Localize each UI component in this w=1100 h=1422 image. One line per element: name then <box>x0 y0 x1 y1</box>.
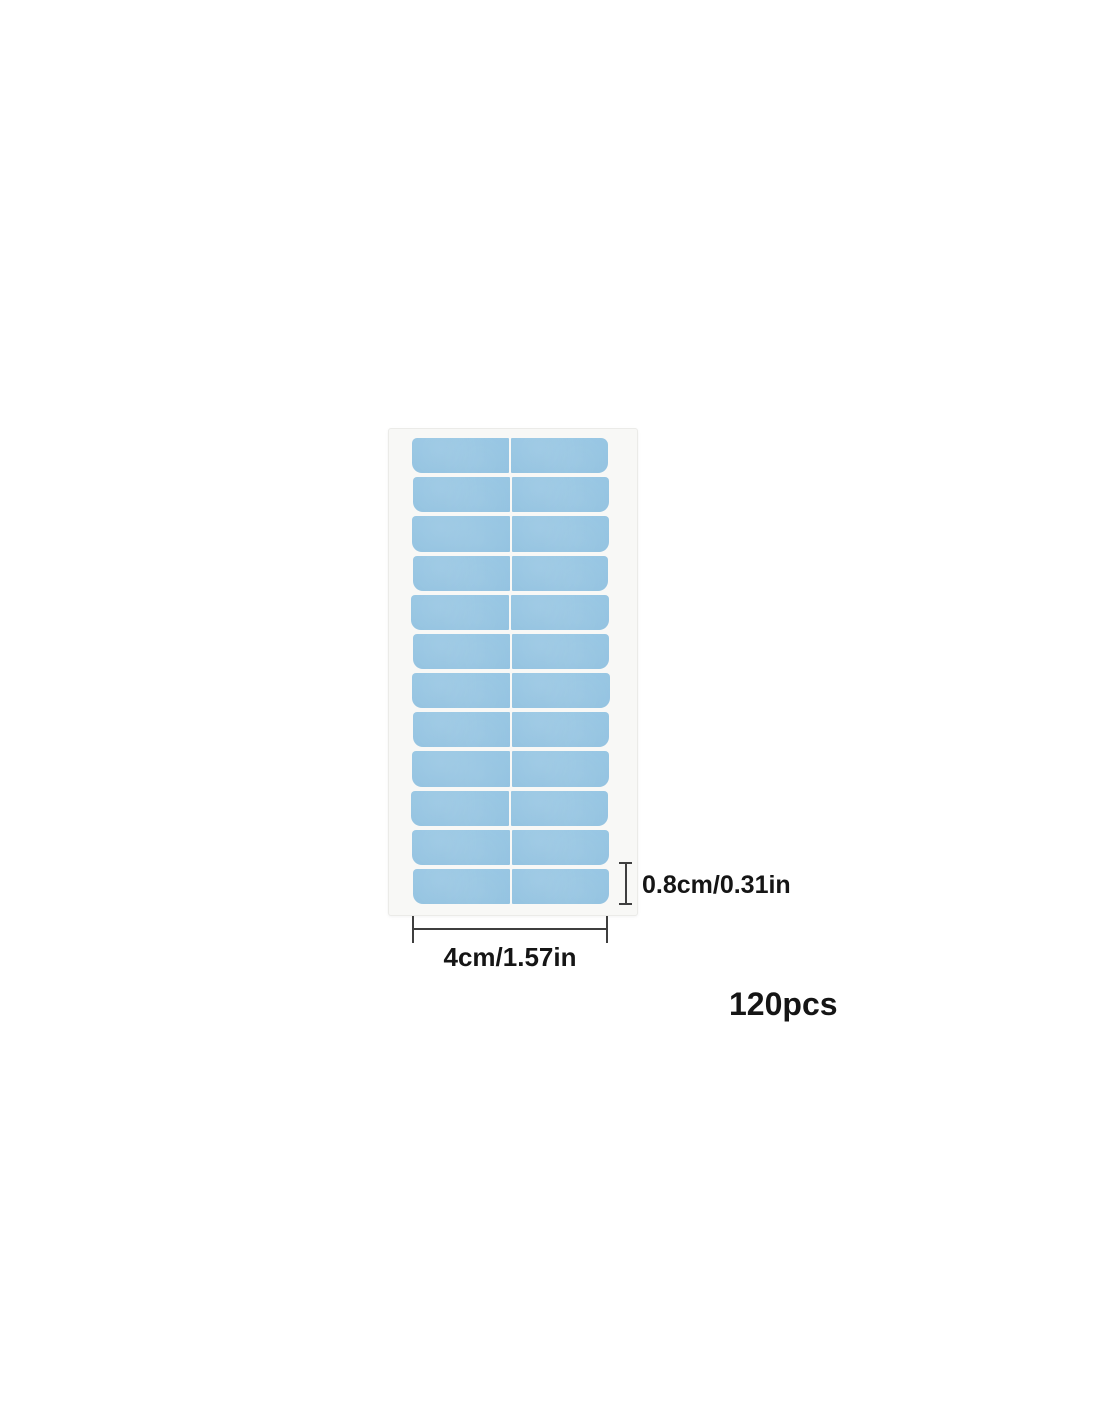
tape-tab <box>413 556 510 591</box>
tape-tab <box>511 595 609 630</box>
tape-tab <box>413 477 510 512</box>
tape-row <box>413 556 608 591</box>
tape-tab <box>413 869 510 904</box>
tape-tab <box>512 634 609 669</box>
tape-row <box>411 791 608 826</box>
dimension-bar <box>412 928 608 930</box>
tape-tab <box>512 830 610 865</box>
tape-tab <box>511 791 609 826</box>
dimension-tick-right <box>606 916 608 943</box>
width-dimension-line <box>412 916 608 943</box>
quantity-label: 120pcs <box>729 987 838 1022</box>
tape-tab <box>512 556 609 591</box>
dimension-cap-bottom <box>619 903 632 905</box>
tape-tab <box>512 516 610 551</box>
tape-row <box>412 673 610 708</box>
tape-tab <box>412 516 510 551</box>
tape-row <box>413 477 609 512</box>
tape-row <box>412 830 609 865</box>
tape-tab <box>412 438 509 473</box>
tape-backing-sheet <box>388 428 638 916</box>
tape-tab <box>512 751 610 786</box>
tape-tab <box>512 869 609 904</box>
tape-row <box>413 634 609 669</box>
tape-tab <box>411 791 509 826</box>
tape-row <box>411 595 609 630</box>
tape-row <box>412 751 609 786</box>
height-dimension-line <box>619 862 632 905</box>
strip-width-label: 4cm/1.57in <box>410 943 610 973</box>
tape-tab <box>413 712 510 747</box>
tape-row <box>412 516 609 551</box>
tape-row <box>413 712 609 747</box>
tape-row <box>413 869 609 904</box>
tape-tab <box>413 634 510 669</box>
tape-tab <box>512 477 609 512</box>
tape-tab <box>412 751 510 786</box>
tape-row <box>412 438 608 473</box>
tape-tab <box>412 673 510 708</box>
tape-tab <box>412 830 510 865</box>
tape-tab <box>511 438 608 473</box>
dimension-bar <box>625 862 627 905</box>
tape-strip-grid <box>412 438 609 904</box>
tape-tab <box>512 673 610 708</box>
tab-height-label: 0.8cm/0.31in <box>642 872 791 900</box>
tape-tab <box>512 712 609 747</box>
product-dimension-diagram: 0.8cm/0.31in 4cm/1.57in 120pcs <box>0 0 1100 1422</box>
tape-tab <box>411 595 509 630</box>
